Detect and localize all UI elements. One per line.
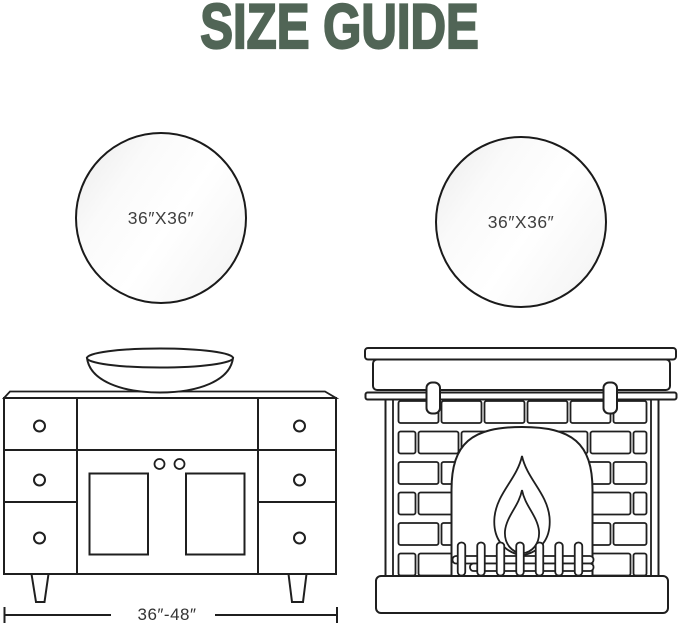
round-mirror-left: 36″X36″ [75,132,247,304]
vanity-illustration: 36″-48″ [0,344,340,629]
mirror-size-label-left: 36″X36″ [128,208,195,229]
round-mirror-right: 36″X36″ [435,136,607,308]
page-title: SIZE GUIDE [75,0,605,59]
mirror-size-label-right: 36″X36″ [488,212,555,233]
size-guide-page: SIZE GUIDE 36″X36″ 36″X36″ [0,0,679,629]
vanity-width-dimension: 36″-48″ [137,605,196,624]
fireplace-illustration [350,340,679,625]
